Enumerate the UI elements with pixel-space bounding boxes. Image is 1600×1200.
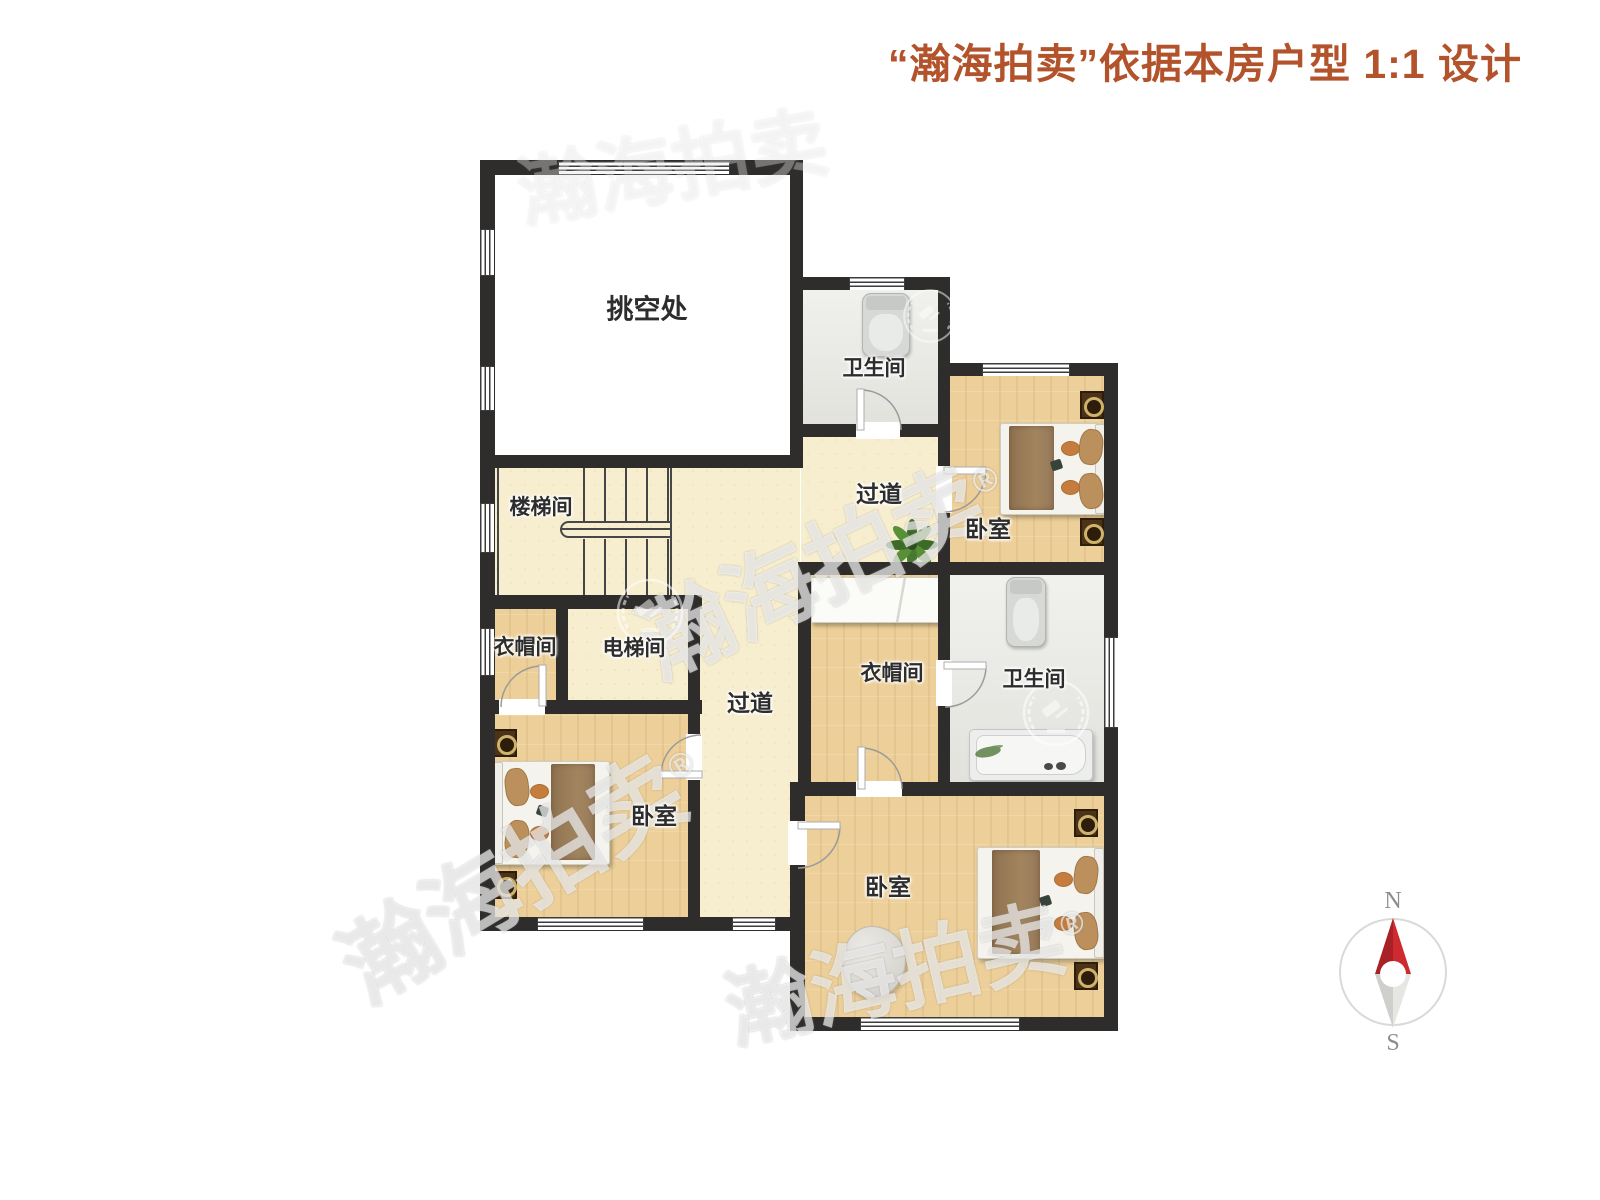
room-label-corridor-upper: 过道: [856, 475, 902, 509]
window: [849, 277, 905, 290]
window: [1104, 637, 1118, 728]
room-label-bed-bottom-left: 卧室: [631, 797, 677, 831]
bed-accessory: [1039, 895, 1053, 908]
room-label-closet-left: 衣帽间: [494, 631, 557, 661]
floorplan-page: “瀚海拍卖”依据本房户型 1:1 设计: [0, 0, 1600, 1200]
nightstand: [1080, 518, 1104, 546]
corridor-lower-floor: [698, 596, 798, 919]
wall-segment: [480, 595, 702, 609]
bed-pillow: [1054, 872, 1073, 887]
page-title: “瀚海拍卖”依据本房户型 1:1 设计: [888, 30, 1522, 90]
bathtub-faucet: [1056, 762, 1066, 770]
bed-accessory: [536, 804, 550, 817]
bathtub-drain: [1044, 763, 1053, 770]
window: [480, 366, 494, 411]
wall-segment: [790, 782, 805, 1031]
bed-blanket: [992, 850, 1040, 954]
nightstand: [493, 871, 517, 899]
wall-segment: [938, 782, 1118, 796]
bed-blanket: [551, 764, 595, 860]
nightstand: [1080, 391, 1104, 419]
wardrobe-cabinet: [811, 577, 941, 623]
nightstand: [493, 729, 517, 757]
bed-pillow: [1061, 480, 1080, 495]
staircase-rail: [560, 521, 672, 538]
window: [558, 161, 730, 174]
bed-pillow: [530, 826, 549, 841]
nightstand: [1074, 962, 1098, 990]
wall-segment: [1104, 363, 1118, 575]
room-label-bath-middle: 卫生间: [1003, 663, 1066, 693]
svg-text:S: S: [1386, 1030, 1399, 1054]
wall-segment: [1104, 782, 1118, 1031]
wall-segment: [798, 562, 940, 575]
door-opening-closet-middle: [856, 781, 902, 797]
room-label-closet-middle: 衣帽间: [861, 657, 924, 687]
room-label-void: 挑空处: [607, 288, 688, 327]
bed-pillow: [1054, 916, 1073, 931]
wall-segment: [938, 277, 950, 575]
bed-pillow: [503, 819, 531, 860]
wall-segment: [938, 562, 1118, 575]
door-opening-bath-middle: [936, 660, 952, 706]
bed-bottom-right: [977, 847, 1105, 959]
room-label-bed-top-right: 卧室: [965, 510, 1011, 544]
nightstand: [1074, 809, 1098, 837]
svg-text:N: N: [1384, 888, 1401, 914]
window: [982, 363, 1070, 376]
wall-segment: [790, 160, 803, 468]
door-opening-closet-left: [499, 699, 545, 715]
bed-blanket: [1009, 426, 1054, 510]
window: [860, 1017, 1020, 1030]
wall-segment: [480, 455, 803, 468]
staircase-lower-flight: [583, 539, 671, 595]
door-opening-bed-bottom-right: [788, 821, 807, 865]
bed-pillow: [1061, 441, 1080, 456]
bed-bottom-left: [492, 761, 610, 865]
room-label-bath-top: 卫生间: [843, 352, 906, 382]
door-opening-bed-bottom-left: [686, 734, 702, 780]
room-label-corridor-lower: 过道: [727, 684, 773, 718]
compass: N S: [1327, 878, 1459, 1054]
window: [732, 917, 776, 930]
door-opening-bath-top: [856, 422, 900, 439]
window: [537, 917, 644, 930]
bed-top-right: [1000, 423, 1106, 515]
window: [480, 229, 494, 276]
toilet-middle-bathroom: [1006, 577, 1046, 647]
window: [480, 628, 494, 676]
bed-pillow: [503, 767, 531, 808]
room-label-stairwell: 楼梯间: [510, 491, 573, 521]
door-opening-bed-top-right: [936, 466, 952, 513]
toilet-top-bathroom: [862, 293, 910, 357]
room-label-elevator: 电梯间: [603, 632, 666, 662]
wall-segment: [798, 562, 811, 796]
bed-accessory: [1050, 459, 1064, 472]
wall-segment: [556, 595, 568, 714]
window: [480, 503, 494, 553]
room-label-bed-bottom-right: 卧室: [865, 868, 911, 902]
bed-pillow: [530, 784, 549, 799]
staircase-upper-flight: [583, 467, 671, 522]
